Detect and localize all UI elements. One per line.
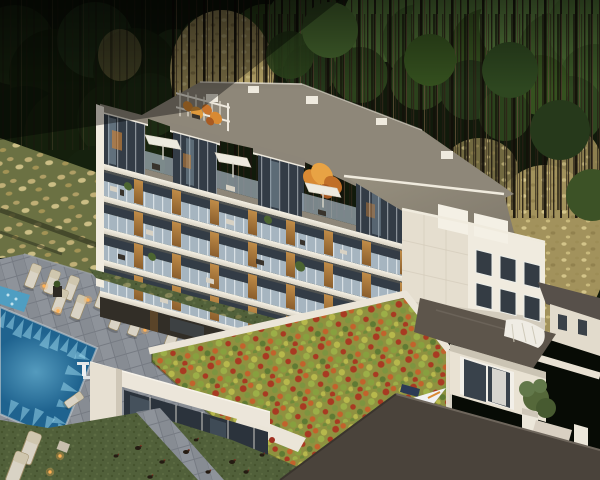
architectural-render: [0, 0, 600, 480]
aerial-render-image: [0, 0, 600, 480]
building-end-wall: [96, 104, 104, 288]
door-curtain: [492, 368, 506, 406]
red-roof-object: [269, 437, 275, 443]
warm-interior-light: [112, 130, 122, 151]
sliding-door-glass: [464, 359, 486, 402]
